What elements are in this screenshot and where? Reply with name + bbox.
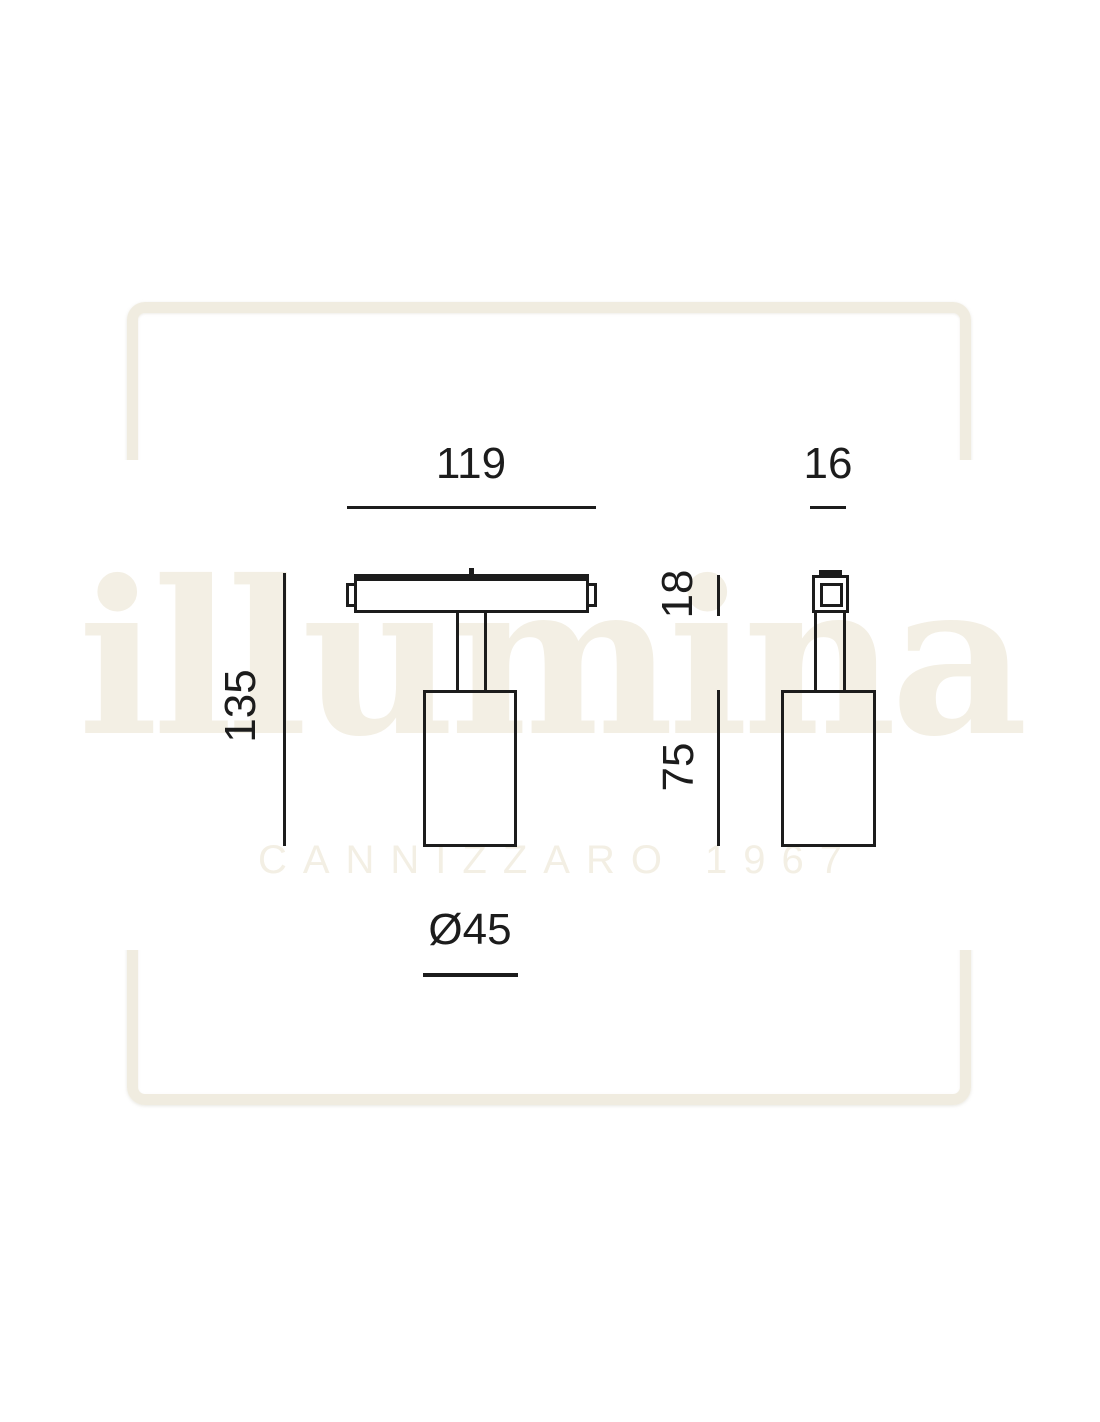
front-view-track-bar <box>354 574 589 613</box>
dim-label-overall-height: 135 <box>219 669 263 742</box>
side-view-head-inner-square <box>820 583 843 607</box>
dim-line-track-width <box>347 506 596 509</box>
front-view-left-end-tab <box>346 583 357 607</box>
side-view-stem <box>814 612 846 692</box>
dim-label-body-diameter: Ø45 <box>428 908 511 952</box>
side-view-cylinder-body <box>781 690 876 847</box>
brand-subtitle-watermark: CANNIZZARO 1967 <box>16 840 1100 880</box>
front-view-stem-right-edge <box>484 611 487 692</box>
dim-line-body-height <box>717 690 720 846</box>
front-view-stem-left-edge <box>456 611 459 692</box>
front-view-bar-center-tick <box>469 568 474 574</box>
product-drawing-page: illumina CANNIZZARO 1967 119 16 135 18 7… <box>0 0 1100 1422</box>
dim-label-body-height: 75 <box>657 743 701 792</box>
front-view-right-end-tab <box>586 583 597 607</box>
dim-line-body-diameter <box>423 973 518 977</box>
dim-label-side-depth: 16 <box>804 442 853 486</box>
dim-label-track-height: 18 <box>656 570 700 619</box>
front-view-cylinder-body <box>423 690 517 847</box>
dim-line-overall-height <box>283 573 286 846</box>
dim-label-track-width: 119 <box>436 442 506 486</box>
dim-line-side-depth <box>810 506 846 509</box>
side-view-head-top-contact <box>819 570 842 577</box>
dim-line-track-height <box>717 575 720 616</box>
